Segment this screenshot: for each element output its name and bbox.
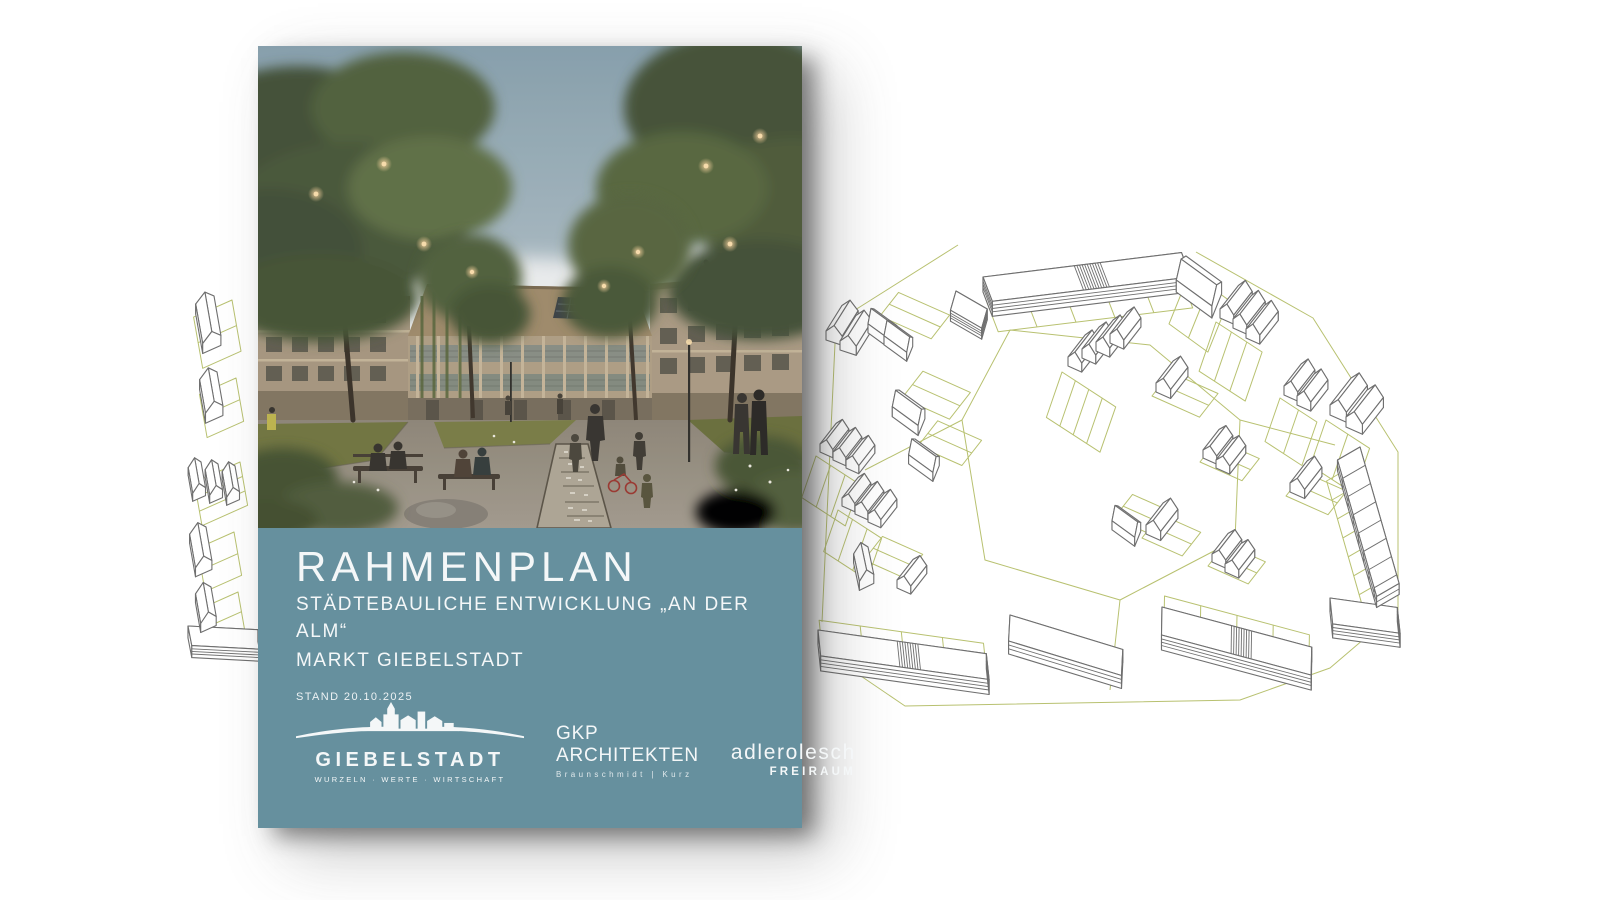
desktop-canvas: RAHMENPLAN STÄDTEBAULICHE ENTWICKLUNG „A… — [0, 0, 1600, 900]
adlerolesch-logo-name: adlerolesch — [731, 741, 856, 765]
cover-photo-rendering — [258, 46, 802, 528]
gkp-logo-name: GKP ARCHITEKTEN — [556, 723, 699, 767]
courtyard-rendering-illustration — [258, 46, 802, 528]
cover-subtitle-line1: STÄDTEBAULICHE ENTWICKLUNG „AN DER ALM“ — [296, 592, 778, 644]
adlerolesch-logo: adlerolesch FREIRAUM — [731, 741, 856, 784]
giebelstadt-logo: GIEBELSTADT WURZELN · WERTE · WIRTSCHAFT — [296, 697, 524, 784]
logo-row: GIEBELSTADT WURZELN · WERTE · WIRTSCHAFT… — [296, 697, 782, 784]
gkp-architekten-logo: GKP ARCHITEKTEN Braunschmidt | Kurz — [556, 723, 699, 784]
document-cover: RAHMENPLAN STÄDTEBAULICHE ENTWICKLUNG „A… — [258, 46, 802, 828]
gkp-logo-tagline: Braunschmidt | Kurz — [556, 770, 699, 779]
giebelstadt-logo-name: GIEBELSTADT — [315, 749, 504, 772]
adlerolesch-logo-tagline: FREIRAUM — [731, 766, 856, 778]
giebelstadt-logo-tagline: WURZELN · WERTE · WIRTSCHAFT — [315, 775, 506, 784]
cover-subtitle-line2: MARKT GIEBELSTADT — [296, 648, 778, 674]
cover-title: RAHMENPLAN — [296, 544, 778, 589]
cover-title-panel: RAHMENPLAN STÄDTEBAULICHE ENTWICKLUNG „A… — [258, 528, 802, 828]
giebelstadt-skyline-icon — [296, 697, 524, 747]
